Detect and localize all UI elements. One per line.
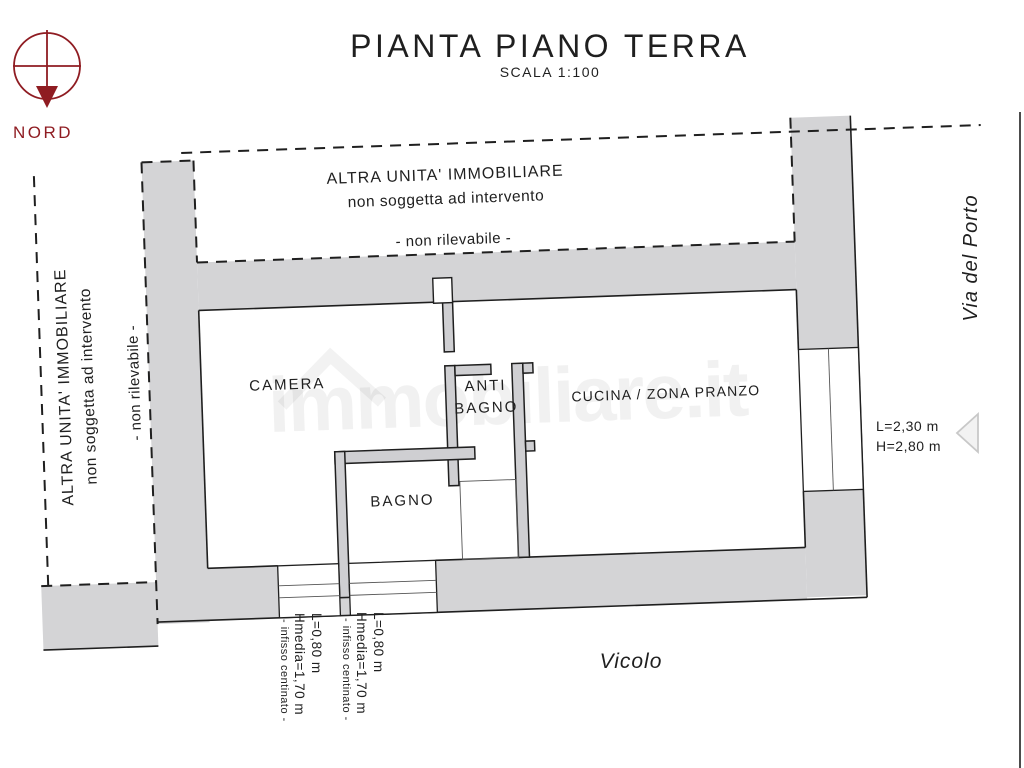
window-bottom-1-note: - infisso centinato -: [278, 619, 290, 722]
partition-antibagno-top: [455, 364, 491, 375]
other-unit-top-line1: ALTRA UNITA' IMMOBILIARE: [326, 163, 564, 188]
window-bottom-2: [349, 560, 438, 615]
wall-left-band: [141, 161, 209, 625]
dashed-left-boundary: [34, 176, 48, 588]
wall-right-band-upper: [790, 116, 858, 350]
other-unit-left-line1: ALTRA UNITA' IMMOBILIARE: [52, 268, 77, 506]
room-label-antibagno-1: ANTI: [464, 377, 507, 395]
window-bottom-2-height: Hmedia=1,70 m: [354, 612, 369, 714]
window-bottom-1: [278, 564, 341, 618]
other-unit-left-note: - non rilevabile -: [124, 325, 145, 441]
scale-label: SCALA 1:100: [500, 64, 601, 80]
other-unit-top-line2: non soggetta ad intervento: [347, 187, 544, 211]
window-right-width: L=2,30 m: [876, 418, 939, 434]
window-bottom-1-width: L=0,80 m: [309, 613, 324, 674]
interior-walls: [330, 299, 541, 598]
north-compass: NORD: [13, 30, 81, 142]
other-unit-top-labels: ALTRA UNITA' IMMOBILIARE non soggetta ad…: [326, 163, 566, 253]
street-label-bottom: Vicolo: [600, 650, 663, 673]
other-unit-left-line2: non soggetta ad intervento: [77, 288, 101, 485]
other-unit-top-note: - non rilevabile -: [395, 230, 511, 251]
wall-right-band-lower: [803, 489, 867, 597]
floor-plan-drawing: NORD PIANTA PIANO TERRA SCALA 1:100 immo…: [0, 0, 1024, 768]
wall-niche: [433, 278, 453, 304]
window-right-height: H=2,80 m: [876, 438, 941, 454]
other-unit-left-labels: ALTRA UNITA' IMMOBILIARE non soggetta ad…: [52, 266, 147, 506]
window-bottom-1-height: Hmedia=1,70 m: [292, 613, 307, 715]
window-bottom-2-dimensions: L=0,80 m Hmedia=1,70 m - infisso centina…: [340, 612, 386, 721]
street-label-right: Via del Porto: [960, 194, 982, 321]
dashed-top-boundary: [181, 125, 981, 153]
plan-body: immobiliare.it: [26, 111, 998, 650]
shower-fixture: [460, 479, 519, 559]
partition-kitchen-jamb-mid: [525, 441, 534, 451]
floor-plan-page: NORD PIANTA PIANO TERRA SCALA 1:100 immo…: [0, 0, 1024, 768]
north-label: NORD: [13, 123, 73, 142]
window-right-dimensions: L=2,30 m H=2,80 m: [876, 414, 978, 454]
window-direction-chevron-icon: [957, 414, 978, 452]
room-label-antibagno-2: BAGNO: [454, 398, 519, 417]
window-bottom-2-note: - infisso centinato -: [340, 618, 352, 721]
north-arrow-icon: [36, 86, 58, 108]
partition-camera-stub: [443, 302, 455, 352]
window-bottom-1-dimensions: L=0,80 m Hmedia=1,70 m - infisso centina…: [278, 613, 324, 722]
page-title: PIANTA PIANO TERRA: [350, 28, 750, 64]
room-label-bagno: BAGNO: [370, 491, 435, 510]
room-label-camera: CAMERA: [249, 375, 326, 395]
wall-bottom-left-band: [41, 582, 158, 650]
window-bottom-2-width: L=0,80 m: [371, 612, 386, 673]
partition-kitchen-jamb-top: [523, 363, 533, 373]
